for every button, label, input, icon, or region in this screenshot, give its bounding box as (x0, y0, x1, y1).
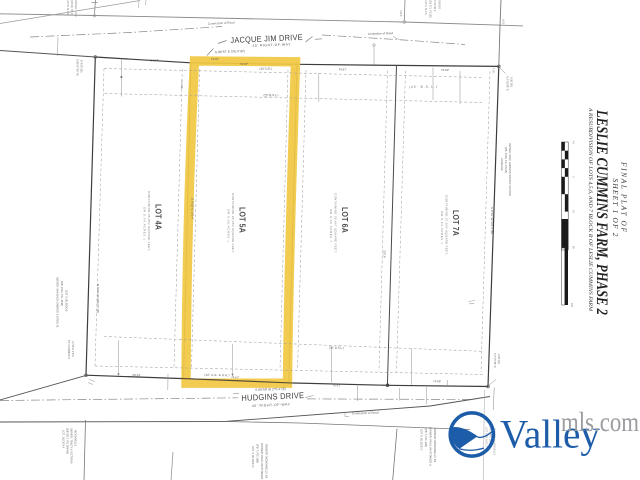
svg-text:(25' B.S.L.): (25' B.S.L.) (263, 93, 278, 97)
svg-text:40' RIGHT-OF-WAY: 40' RIGHT-OF-WAY (252, 42, 291, 47)
svg-text:N 89°57'45" W: N 89°57'45" W (76, 59, 80, 76)
svg-text:HUDGINS DRIVE: HUDGINS DRIVE (241, 390, 304, 403)
svg-text:75.41': 75.41' (332, 383, 341, 387)
svg-text:74.67': 74.67' (211, 57, 220, 61)
svg-text:40: 40 (572, 141, 575, 144)
svg-text:LOT 6A: LOT 6A (340, 207, 350, 233)
svg-text:ROBERT MCKINNELLY JR.: ROBERT MCKINNELLY JR. (265, 444, 269, 479)
svg-text:(DB 99, PG 1): (DB 99, PG 1) (70, 0, 73, 15)
svg-text:PT. COMMON S: PT. COMMON S (67, 340, 71, 359)
svg-text:OWNER: PAUL WHITTAKER &: OWNER: PAUL WHITTAKER & (429, 427, 433, 466)
svg-text:CONTAINING 27,934 SQUARE FEET,: CONTAINING 27,934 SQUARE FEET, (445, 195, 449, 255)
svg-text:±40.1': ±40.1' (399, 10, 403, 17)
svg-text:5.00' (R): 5.00' (R) (510, 77, 514, 87)
svg-text:S 0°02' E 370.4': S 0°02' E 370.4' (191, 198, 195, 220)
svg-text:(PB 7, PG 188): (PB 7, PG 188) (256, 444, 260, 463)
svg-text:(PB 7, PG 108): (PB 7, PG 108) (424, 428, 428, 447)
svg-text:OR 0.64 ACRES ±: OR 0.64 ACRES ± (143, 207, 147, 240)
svg-text:OWNER: OWNER (438, 0, 441, 9)
svg-text:OWNER: J & M: OWNER: J & M (74, 0, 77, 17)
svg-text:OR 0.64 ACRES ±: OR 0.64 ACRES ± (440, 211, 444, 244)
svg-text:0: 0 (572, 176, 575, 178)
svg-text:(DB 2017, PG 2894-B): (DB 2017, PG 2894-B) (66, 428, 70, 454)
svg-text:LOT 5, BLOCK C: LOT 5, BLOCK C (420, 429, 424, 451)
svg-text:SHEET 1 OF 2: SHEET 1 OF 2 (611, 179, 620, 237)
svg-text:LESLIE CUMMINS FARM, PHASE 2: LESLIE CUMMINS FARM, PHASE 2 (593, 109, 610, 315)
svg-text:CONTAINING 28,853 SQUARE FEET,: CONTAINING 28,853 SQUARE FEET, (147, 191, 151, 251)
svg-text:(DB. 2012, PG. 4948): (DB. 2012, PG. 4948) (60, 281, 64, 306)
svg-text:4.00' (R): 4.00' (R) (497, 354, 501, 364)
svg-text:100: 100 (570, 303, 573, 308)
svg-text:LOT 4, BLOCK C: LOT 4, BLOCK C (251, 446, 255, 468)
svg-text:34.67': 34.67' (150, 58, 159, 62)
svg-text:74.67': 74.67' (231, 375, 240, 379)
svg-text:OWNER: PAUL WHITTAKER &: OWNER: PAUL WHITTAKER & (260, 443, 264, 480)
svg-text:74.67': 74.67' (240, 62, 249, 66)
svg-text:OR 0.65 ACRES ±: OR 0.65 ACRES ± (329, 209, 333, 242)
svg-text:80: 80 (572, 246, 575, 249)
svg-text:74.62': 74.62' (433, 379, 442, 383)
svg-text:0.7'W & 0.6'N: 0.7'W & 0.6'N (71, 341, 75, 357)
svg-text:74.67': 74.67' (339, 67, 348, 71)
svg-text:S 89°57' E 370.4' (R): S 89°57' E 370.4' (R) (215, 49, 245, 54)
svg-text:370.4': 370.4' (383, 250, 387, 259)
svg-text:E 4.00' (R): E 4.00' (R) (80, 60, 84, 72)
svg-text:(35' B.S.L.): (35' B.S.L.) (329, 346, 344, 350)
svg-text:N 0°01' W 360.73' (D): N 0°01' W 360.73' (D) (96, 284, 100, 313)
svg-text:40: 40 (572, 210, 575, 213)
svg-text:N 0°07'45" E: N 0°07'45" E (493, 353, 497, 368)
svg-text:LOT 7A: LOT 7A (451, 210, 461, 236)
svg-text:OWNER: SHANNON SHERER & ETHEL: OWNER: SHANNON SHERER & ETHEL M. (56, 277, 60, 328)
svg-text:A RESUBDIVISION OF LOTS 4,5,6,: A RESUBDIVISION OF LOTS 4,5,6, AND 7 BLO… (587, 107, 593, 312)
svg-text:LOT 3, BLOCK C: LOT 3, BLOCK C (485, 427, 489, 447)
svg-text:LOT 5A: LOT 5A (238, 207, 248, 233)
svg-text:ROBERT MCKINNELLY JR.: ROBERT MCKINNELLY JR. (433, 428, 437, 463)
svg-text:LOT 3, BLOCK B: LOT 3, BLOCK B (65, 290, 69, 312)
svg-text:LOT , BLOCK A: LOT , BLOCK A (62, 430, 66, 449)
svg-text:ACREAGE: ACREAGE (500, 158, 504, 171)
svg-text:Connection of Road: Connection of Road (352, 411, 379, 416)
svg-text:OWNER: APAC HUDGINS SUPPLY CEN: OWNER: APAC HUDGINS SUPPLY CENTER (508, 143, 512, 196)
svg-text:(10' U.E.): (10' U.E.) (259, 67, 272, 71)
svg-text:Centerline of Road: Centerline of Road (368, 31, 393, 36)
svg-text:N 30°08' E: N 30°08' E (433, 0, 436, 12)
svg-text:N 0°02'45" E: N 0°02'45" E (506, 76, 510, 91)
svg-text:40' RIGHT-OF-WAY: 40' RIGHT-OF-WAY (252, 402, 291, 408)
svg-text:(PB. 2016, PG. 152-B): (PB. 2016, PG. 152-B) (504, 147, 508, 173)
svg-text:MCKINNELLY: MCKINNELLY (74, 430, 78, 447)
svg-text:CONTAINING 28,447 SQUARE FEET,: CONTAINING 28,447 SQUARE FEET, (334, 193, 338, 253)
svg-text:±0.6: ±0.6 (502, 19, 506, 25)
svg-text:OR 0.65 ACRES ±: OR 0.65 ACRES ± (227, 209, 231, 242)
svg-text:(10' U.E. & D.E.): (10' U.E. & D.E.) (204, 373, 229, 377)
svg-text:LOT 4A: LOT 4A (154, 204, 164, 230)
svg-text:LOT 8, BLK A: LOT 8, BLK A (66, 0, 69, 15)
svg-text:59.63': 59.63' (132, 373, 141, 377)
svg-text:CONTAINING 28,483 SQUARE FEET,: CONTAINING 28,483 SQUARE FEET, (231, 193, 235, 253)
svg-text:OWNER: TRACY & VICTORIA: OWNER: TRACY & VICTORIA (70, 428, 74, 464)
svg-text:(DB 271, PG 38): (DB 271, PG 38) (429, 0, 432, 18)
svg-text:LOT 1, BLK A: LOT 1, BLK A (424, 0, 427, 15)
svg-text:74.62': 74.62' (441, 68, 450, 72)
svg-text:Connection of Road: Connection of Road (208, 20, 235, 25)
svg-text:S 0°01' W 370.4' (B): S 0°01' W 370.4' (B) (490, 207, 494, 234)
svg-text:mls.com: mls.com (561, 407, 639, 437)
svg-text:4.00: 4.00 (492, 68, 495, 73)
